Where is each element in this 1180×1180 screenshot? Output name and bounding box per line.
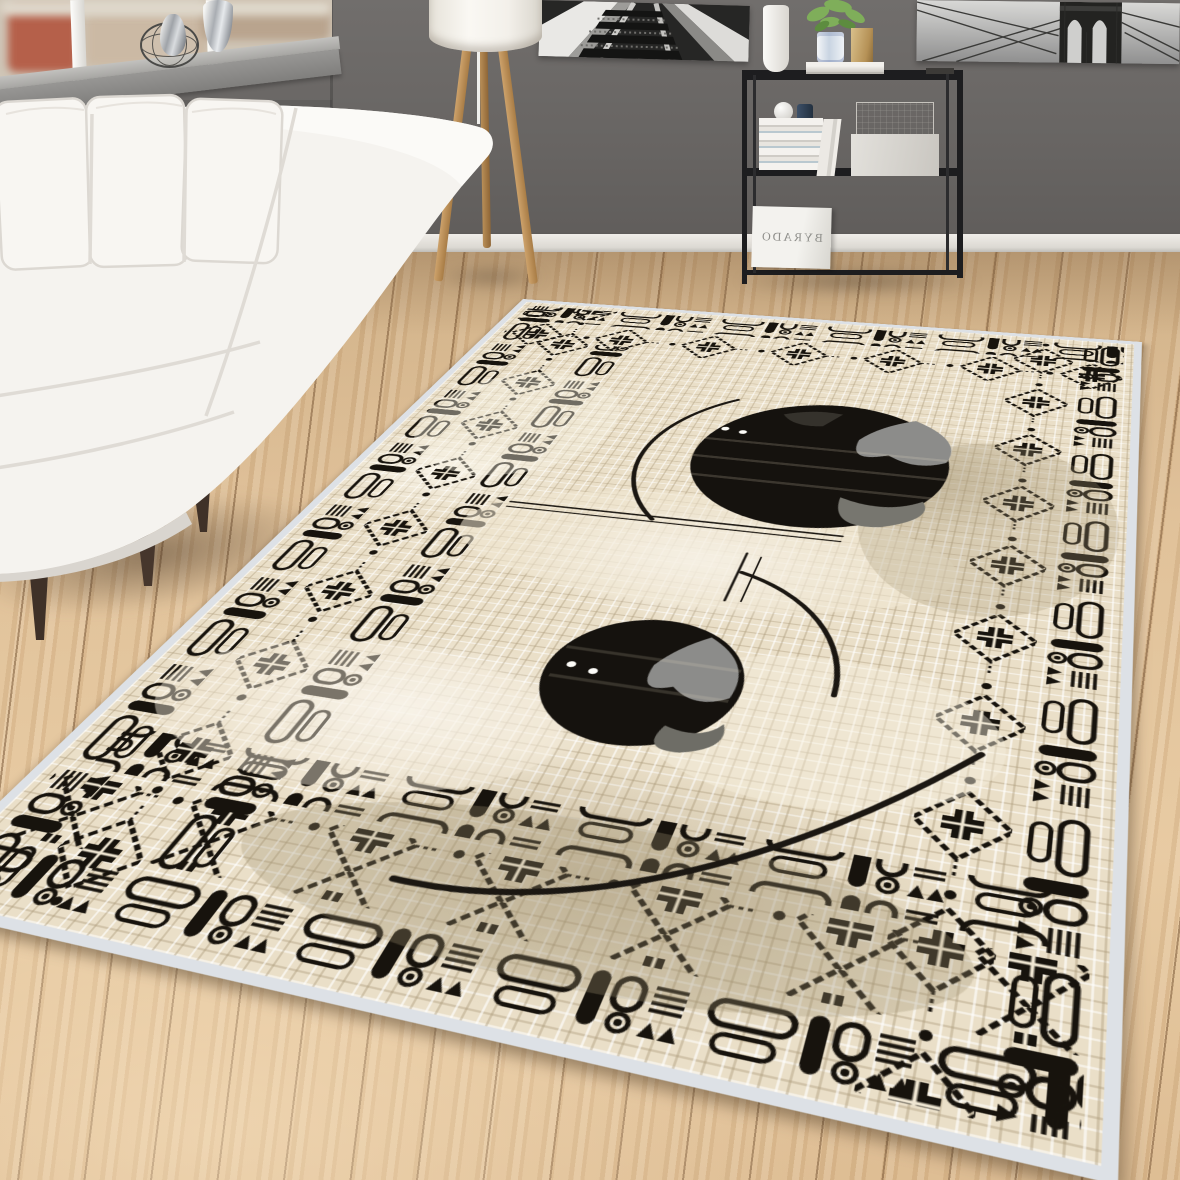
- sofa: [0, 84, 516, 664]
- gold-box: [851, 28, 873, 66]
- byrado-board: BYRADO: [751, 206, 832, 269]
- book-stack-middle: [759, 118, 823, 170]
- lamp-shade: [429, 0, 542, 52]
- bridge-art-print: [916, 0, 1180, 64]
- white-vase: [763, 5, 789, 72]
- grid-storage-box: [856, 102, 934, 135]
- shelf-bottom-bar: [744, 270, 961, 275]
- book-stack-top: [806, 62, 884, 72]
- shelf-rear-leg-right: [946, 74, 949, 270]
- blue-white-planter: [817, 32, 844, 64]
- shelf-leg-left: [742, 72, 747, 284]
- byrado-label: BYRADO: [760, 229, 823, 246]
- silver-jug-decor: [160, 14, 186, 56]
- gray-storage-box: [851, 134, 939, 176]
- railroad-art-print: [538, 0, 749, 62]
- small-notebook: [926, 68, 954, 74]
- living-room-scene: BYRADO: [0, 0, 1180, 1180]
- sky-strip: [0, 0, 332, 16]
